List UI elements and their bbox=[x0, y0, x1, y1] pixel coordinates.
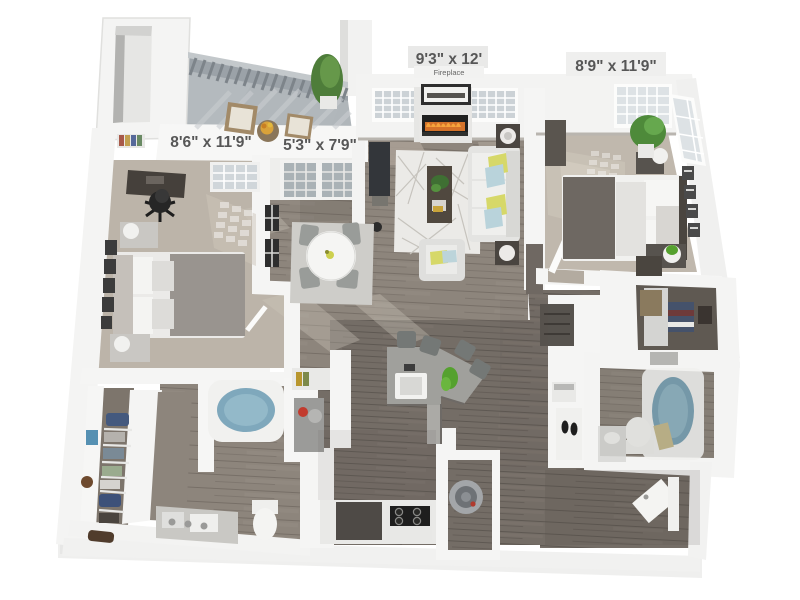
svg-text:8'9" x 11'9": 8'9" x 11'9" bbox=[575, 58, 657, 75]
svg-text:Fireplace: Fireplace bbox=[434, 68, 465, 77]
svg-text:8'6" x 11'9": 8'6" x 11'9" bbox=[170, 134, 252, 151]
svg-text:9'3" x 12': 9'3" x 12' bbox=[416, 51, 482, 68]
svg-text:5'3" x 7'9": 5'3" x 7'9" bbox=[283, 137, 357, 154]
